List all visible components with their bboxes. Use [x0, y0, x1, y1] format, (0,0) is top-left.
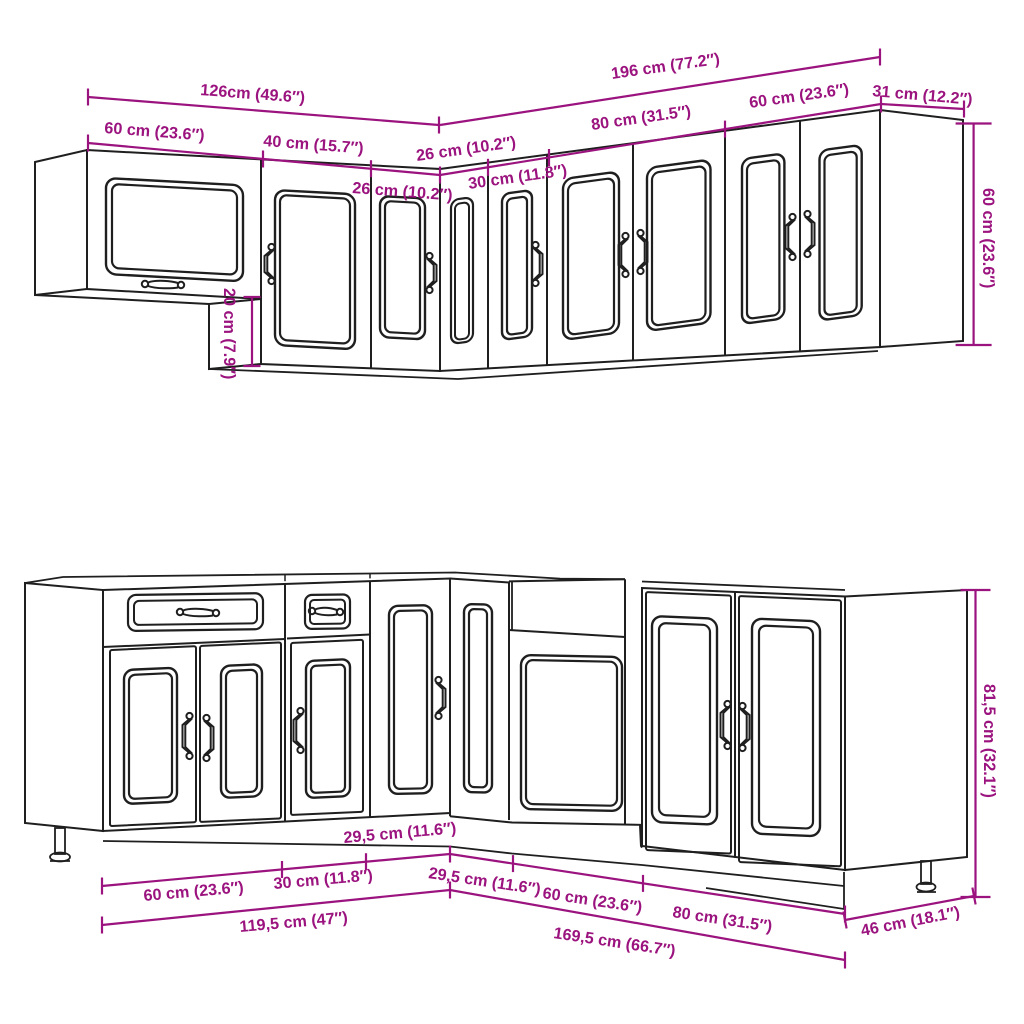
svg-text:20 cm (7.9″): 20 cm (7.9″)	[220, 288, 238, 379]
svg-text:81,5 cm (32.1″): 81,5 cm (32.1″)	[980, 684, 998, 798]
svg-text:60 cm (23.6″): 60 cm (23.6″)	[979, 188, 997, 288]
